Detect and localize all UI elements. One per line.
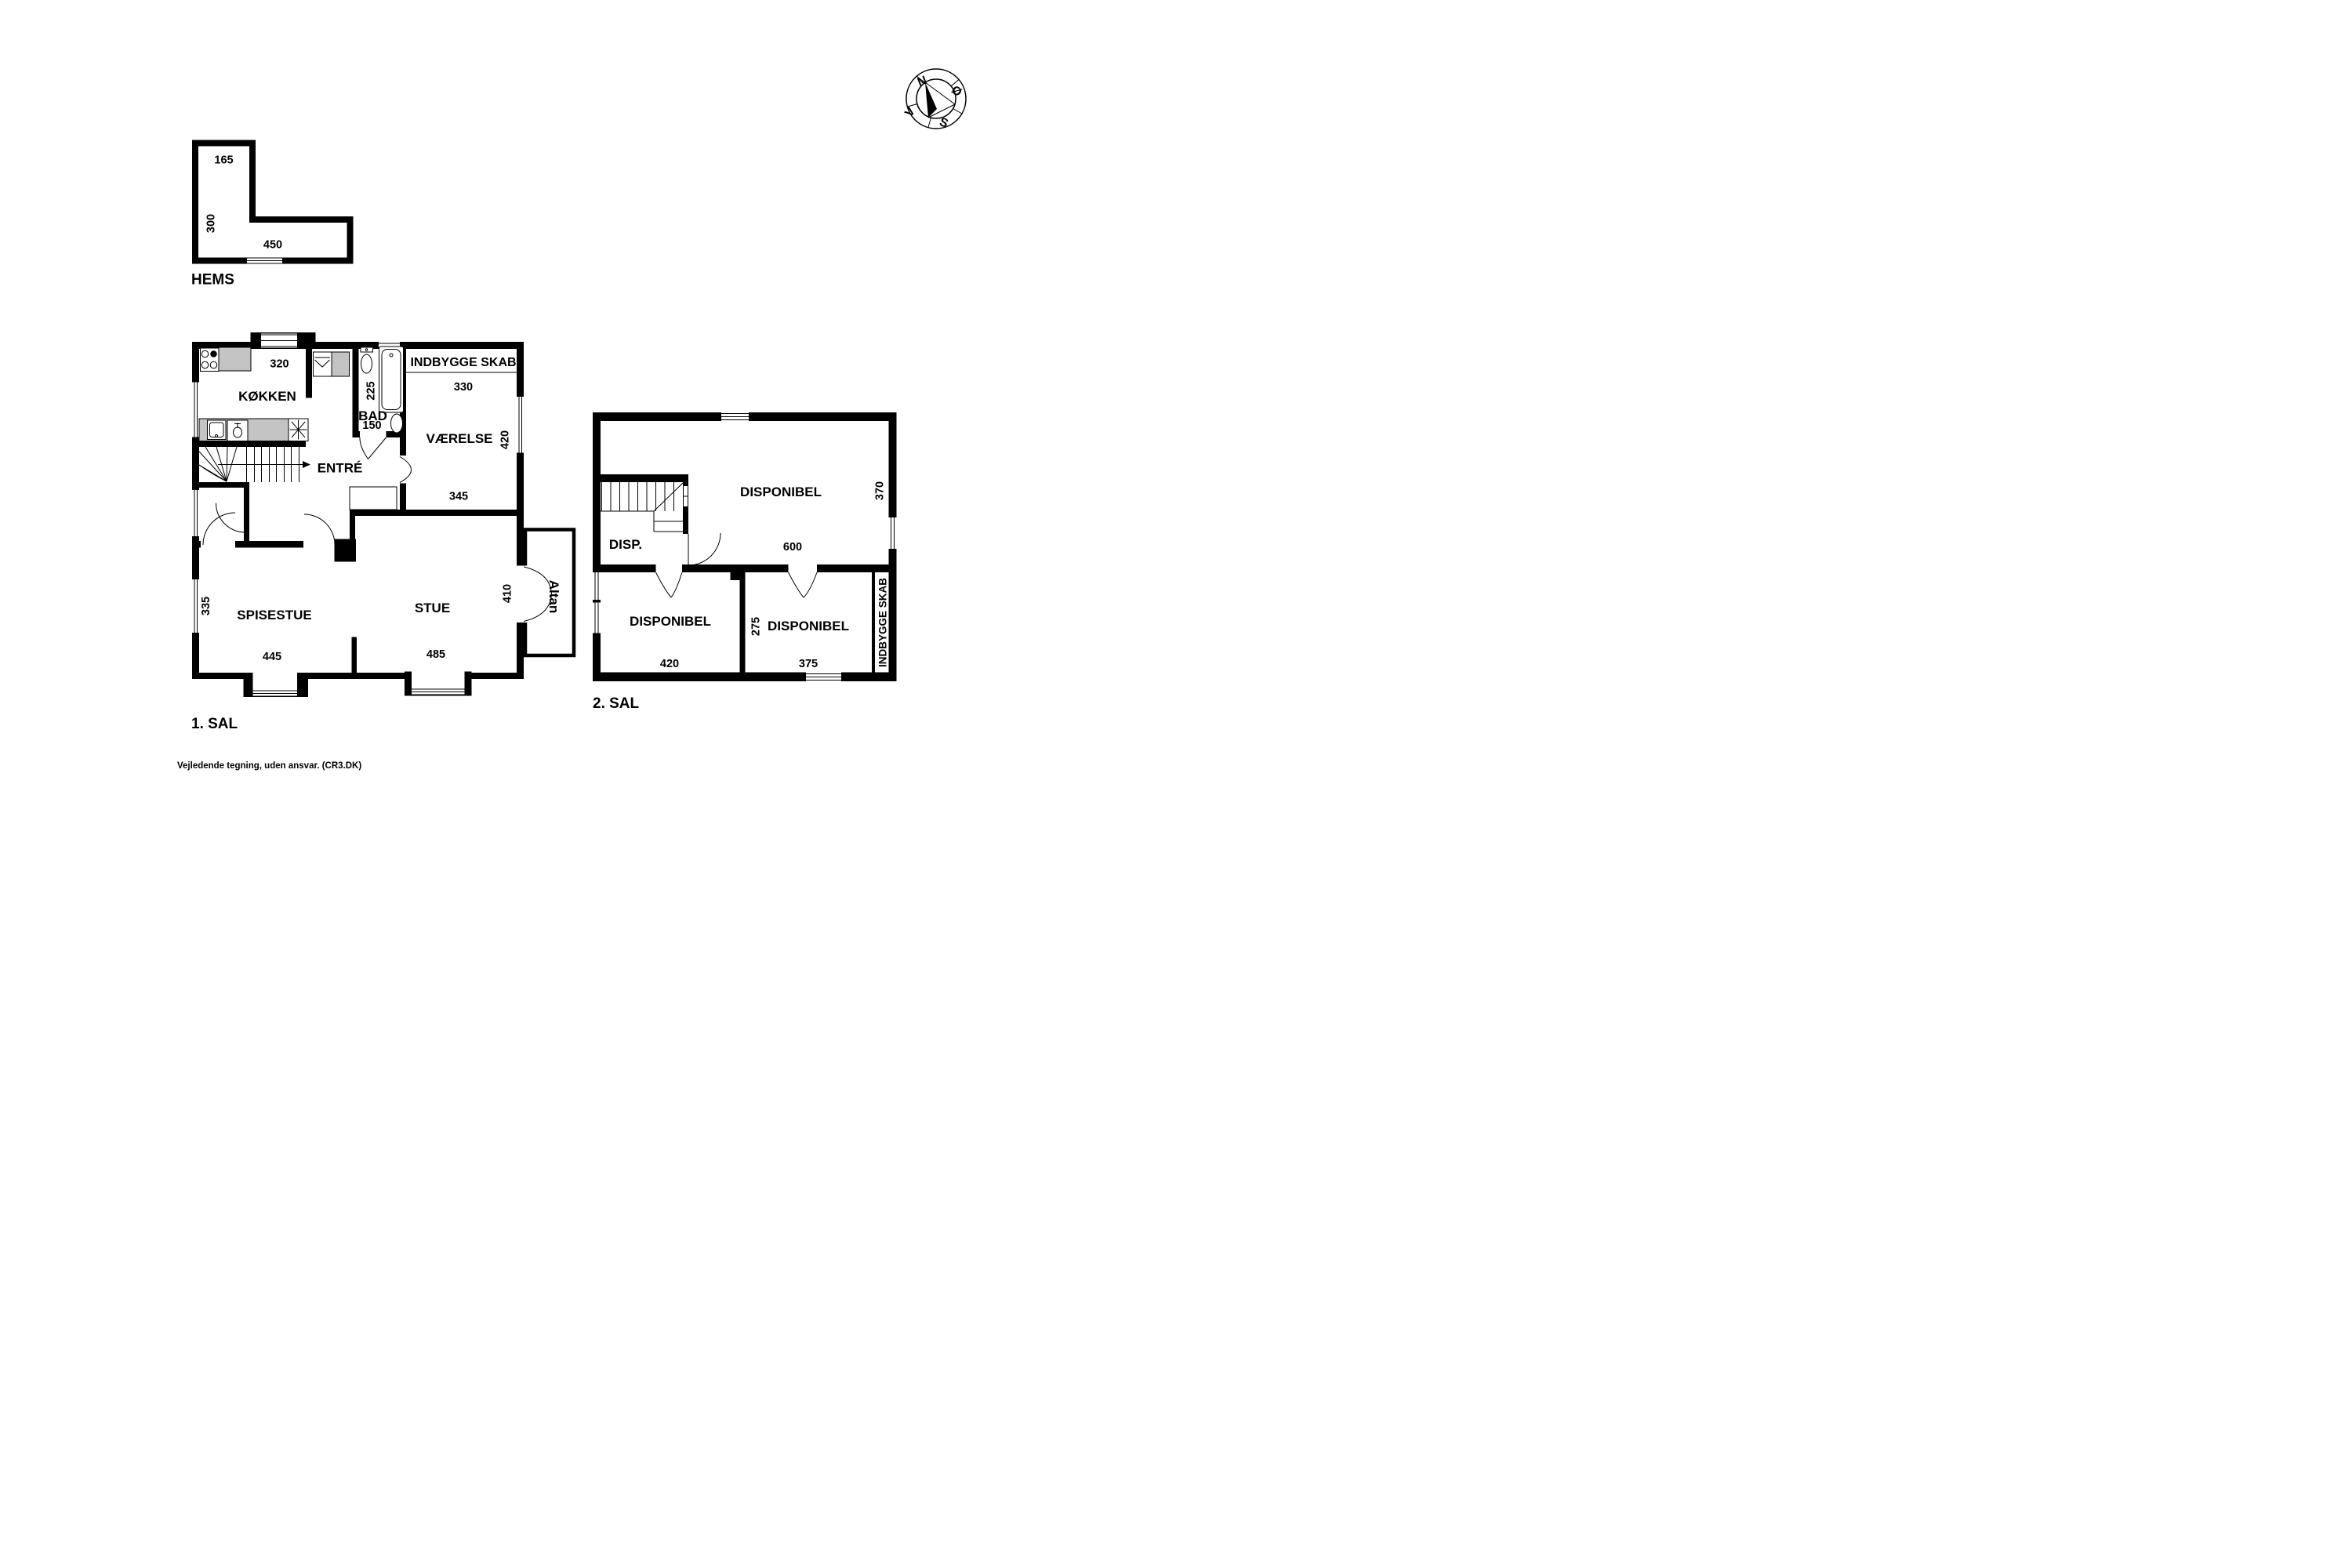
disponibel-right-label: DISPONIBEL	[768, 619, 849, 633]
disp-label: DISP.	[609, 537, 642, 552]
vaerelse-label: VÆRELSE	[426, 431, 492, 446]
entre-label: ENTRÉ	[318, 461, 363, 476]
disponibel-left-dim-bottom: 420	[660, 658, 679, 670]
hems-plan: 165 300 450 HEMS	[191, 140, 354, 289]
indbygge-skab-label: INDBYGGE SKAB	[410, 356, 516, 369]
sal1-stairs	[199, 447, 310, 482]
kitchen-counter-top	[219, 347, 251, 371]
floorplan-drawing: 165 300 450 HEMS	[0, 0, 1176, 784]
vaerelse-dim-top: 330	[454, 381, 473, 394]
sal2-stairs	[601, 482, 683, 532]
disponibel-main-dim-bottom: 600	[783, 541, 802, 554]
disponibel-left-label: DISPONIBEL	[630, 614, 711, 629]
sal1-bay-window-spisestue	[244, 673, 309, 697]
sal1-plan: 320 KØKKEN 225 BAD 150 INDBYGGE SKAB 330…	[191, 332, 574, 732]
sal2-plan: DISP. DISPONIBEL 600 370 DISPONIBEL 420 …	[593, 412, 897, 712]
sal2-title: 2. SAL	[593, 695, 640, 712]
bathtub-icon	[379, 347, 404, 412]
footer-disclaimer: Vejledende tegning, uden ansvar. (CR3.DK…	[177, 761, 361, 771]
vaerelse-dim-right: 420	[499, 430, 512, 449]
sal1-bay-window-stue	[405, 672, 472, 696]
hems-window	[247, 257, 282, 265]
disponibel-main-dim-right: 370	[874, 481, 887, 500]
stove-icon	[201, 348, 220, 372]
sal1-title: 1. SAL	[191, 716, 238, 732]
hems-dim-bottom: 450	[263, 239, 282, 252]
bad-dim-left: 225	[365, 381, 378, 400]
hems-dim-top: 165	[214, 154, 233, 167]
spisestue-dim-bottom: 445	[263, 651, 281, 663]
stue-dim-bottom: 485	[426, 648, 445, 661]
washing-machine-icon	[314, 352, 332, 376]
kitchen-tap-unit-icon	[227, 420, 248, 441]
stairs-arrow	[303, 461, 310, 468]
hems-title: HEMS	[191, 272, 234, 289]
vaerelse-dim-bottom: 345	[449, 491, 468, 503]
kitchen-sink-icon	[208, 420, 227, 440]
bad-dim-bottom: 150	[362, 419, 381, 432]
stue-dim-right: 410	[502, 584, 514, 603]
altan-label: Altan	[546, 580, 561, 614]
hems-dim-left: 300	[205, 214, 218, 233]
spisestue-label: SPISESTUE	[237, 608, 311, 622]
compass-icon: N Ø S V	[902, 69, 966, 131]
spisestue-dim-left: 335	[200, 597, 212, 615]
appliance-icon	[289, 419, 308, 441]
sal2-indbygge-skab-label: INDBYGGE SKAB	[877, 578, 889, 667]
stue-label: STUE	[415, 601, 450, 615]
disponibel-right-dim-left: 275	[750, 617, 763, 636]
disponibel-main-label: DISPONIBEL	[740, 485, 822, 499]
bath-sink-icon	[391, 414, 403, 433]
kokken-dim-top: 320	[270, 358, 289, 371]
disponibel-right-dim-bottom: 375	[799, 658, 818, 670]
laundry-counter	[332, 352, 350, 376]
toilet-icon	[361, 347, 373, 373]
kokken-label: KØKKEN	[238, 389, 296, 404]
entry-mat	[350, 487, 397, 510]
floorplan-page: 165 300 450 HEMS	[0, 0, 1176, 784]
